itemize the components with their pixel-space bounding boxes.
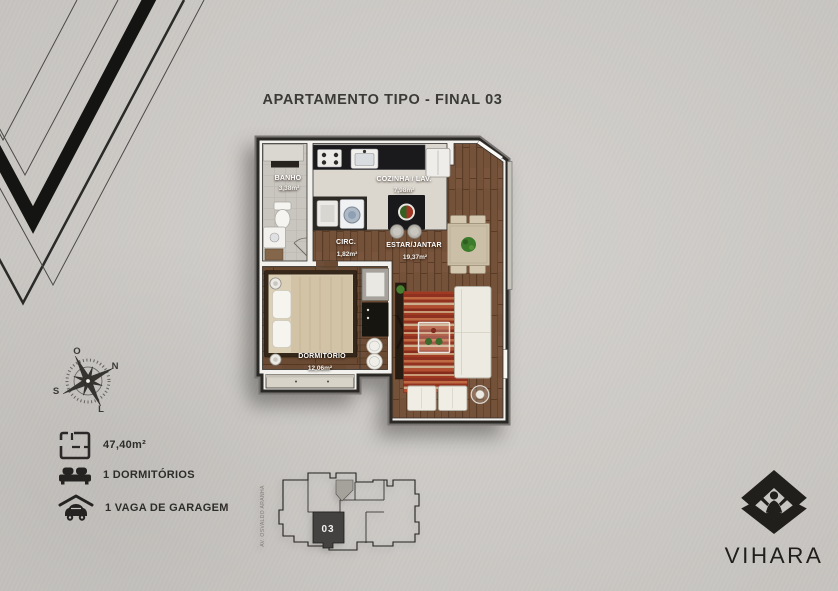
laundry-tub-basin <box>321 205 335 222</box>
key-plan-drawing: 03 AV. OSVALDO ARANHA <box>256 466 426 566</box>
room-label-banho: BANHO <box>275 175 302 182</box>
toilet-bowl <box>275 210 290 229</box>
burner <box>322 153 326 157</box>
stool-seat <box>410 227 419 236</box>
poster-canvas: { "title": "APARTAMENTO TIPO - FINAL 03"… <box>0 0 838 591</box>
pillow <box>273 321 292 348</box>
floor-plan-drawing: BANHO 3,38m² COZINHA / LAV. 7,98m² CIRC.… <box>250 132 515 432</box>
table-plant <box>461 237 476 252</box>
coffee-table-plant <box>435 338 442 345</box>
room-area-estar: 19,37m² <box>403 254 428 261</box>
compass-east: L <box>98 404 104 415</box>
bedside-lamp-center <box>273 281 278 286</box>
balcony-handle <box>295 381 297 383</box>
entry-threshold <box>271 161 299 168</box>
cooktop <box>318 150 342 168</box>
sink-basin <box>355 154 374 166</box>
compass-south: S <box>53 386 59 397</box>
bedroom-door-opening <box>316 261 338 267</box>
stat-total-area: 47,40m² <box>58 430 146 460</box>
street-label: AV. OSVALDO ARANHA <box>260 485 266 547</box>
washer-drum <box>348 211 356 219</box>
hamper <box>367 354 383 370</box>
shelf-knob <box>367 317 369 319</box>
shelf-knob <box>367 309 369 311</box>
floorplan-icon <box>58 430 92 460</box>
garage-car-icon <box>58 494 94 522</box>
burner <box>322 160 326 164</box>
bedside-lamp-center <box>273 357 278 362</box>
compass-north: N <box>112 361 119 372</box>
compass-west: O <box>73 346 80 357</box>
parking-label: 1 VAGA DE GARAGEM <box>105 502 229 514</box>
right-ledge <box>508 162 513 290</box>
room-label-cozinha: COZINHA / LAV. <box>376 176 431 183</box>
room-area-dormitorio: 12,06m² <box>308 365 333 372</box>
room-label-estar: ESTAR/JANTAR <box>386 242 441 249</box>
bedrooms-label: 1 DORMITÓRIOS <box>103 469 195 481</box>
balcony-shade <box>266 375 354 378</box>
table-plant-leaf <box>469 245 474 250</box>
hamper <box>367 338 383 354</box>
room-area-circ: 1,82m² <box>337 251 358 258</box>
compass-rose: O N S L <box>44 338 136 427</box>
balcony-handle <box>327 381 329 383</box>
side-table-top <box>476 390 484 398</box>
toilet-tank <box>274 202 291 210</box>
stat-bedrooms: 1 DORMITÓRIOS <box>58 464 195 486</box>
total-area-label: 47,40m² <box>103 439 146 451</box>
entry-niche <box>264 145 304 162</box>
room-area-cozinha: 7,98m² <box>394 187 415 194</box>
vihara-logo-icon <box>733 470 815 534</box>
wardrobe-shelf <box>362 303 389 337</box>
room-label-circ: CIRC. <box>336 239 356 246</box>
bed-icon <box>58 464 92 486</box>
vanity-sink <box>270 233 279 242</box>
coffee-table <box>419 323 450 353</box>
vanity-cabinet <box>265 249 283 260</box>
burner <box>334 160 338 164</box>
page-title: APARTAMENTO TIPO - FINAL 03 <box>250 92 515 108</box>
unit-number: 03 <box>321 524 334 535</box>
stat-parking: 1 VAGA DE GARAGEM <box>58 494 229 522</box>
dresser-top <box>366 273 385 297</box>
room-area-banho: 3,38m² <box>279 185 300 192</box>
corner-chevrons-decoration <box>0 0 240 330</box>
pillow <box>273 291 292 319</box>
table-plant-leaf <box>463 240 468 245</box>
coffee-table-bowl <box>431 328 436 333</box>
coffee-table-plant <box>425 338 432 345</box>
brand-name: VIHARA <box>714 543 834 569</box>
compass-icon: O N S L <box>44 338 136 422</box>
stool-seat <box>393 227 402 236</box>
building-key-plan: 03 AV. OSVALDO ARANHA <box>256 466 426 571</box>
floor-plan: BANHO 3,38m² COZINHA / LAV. 7,98m² CIRC.… <box>250 132 515 432</box>
vihara-logo: VIHARA <box>714 470 834 569</box>
burner <box>334 153 338 157</box>
room-label-dormitorio: DORMITÓRIO <box>298 351 346 360</box>
faucet <box>363 150 366 153</box>
